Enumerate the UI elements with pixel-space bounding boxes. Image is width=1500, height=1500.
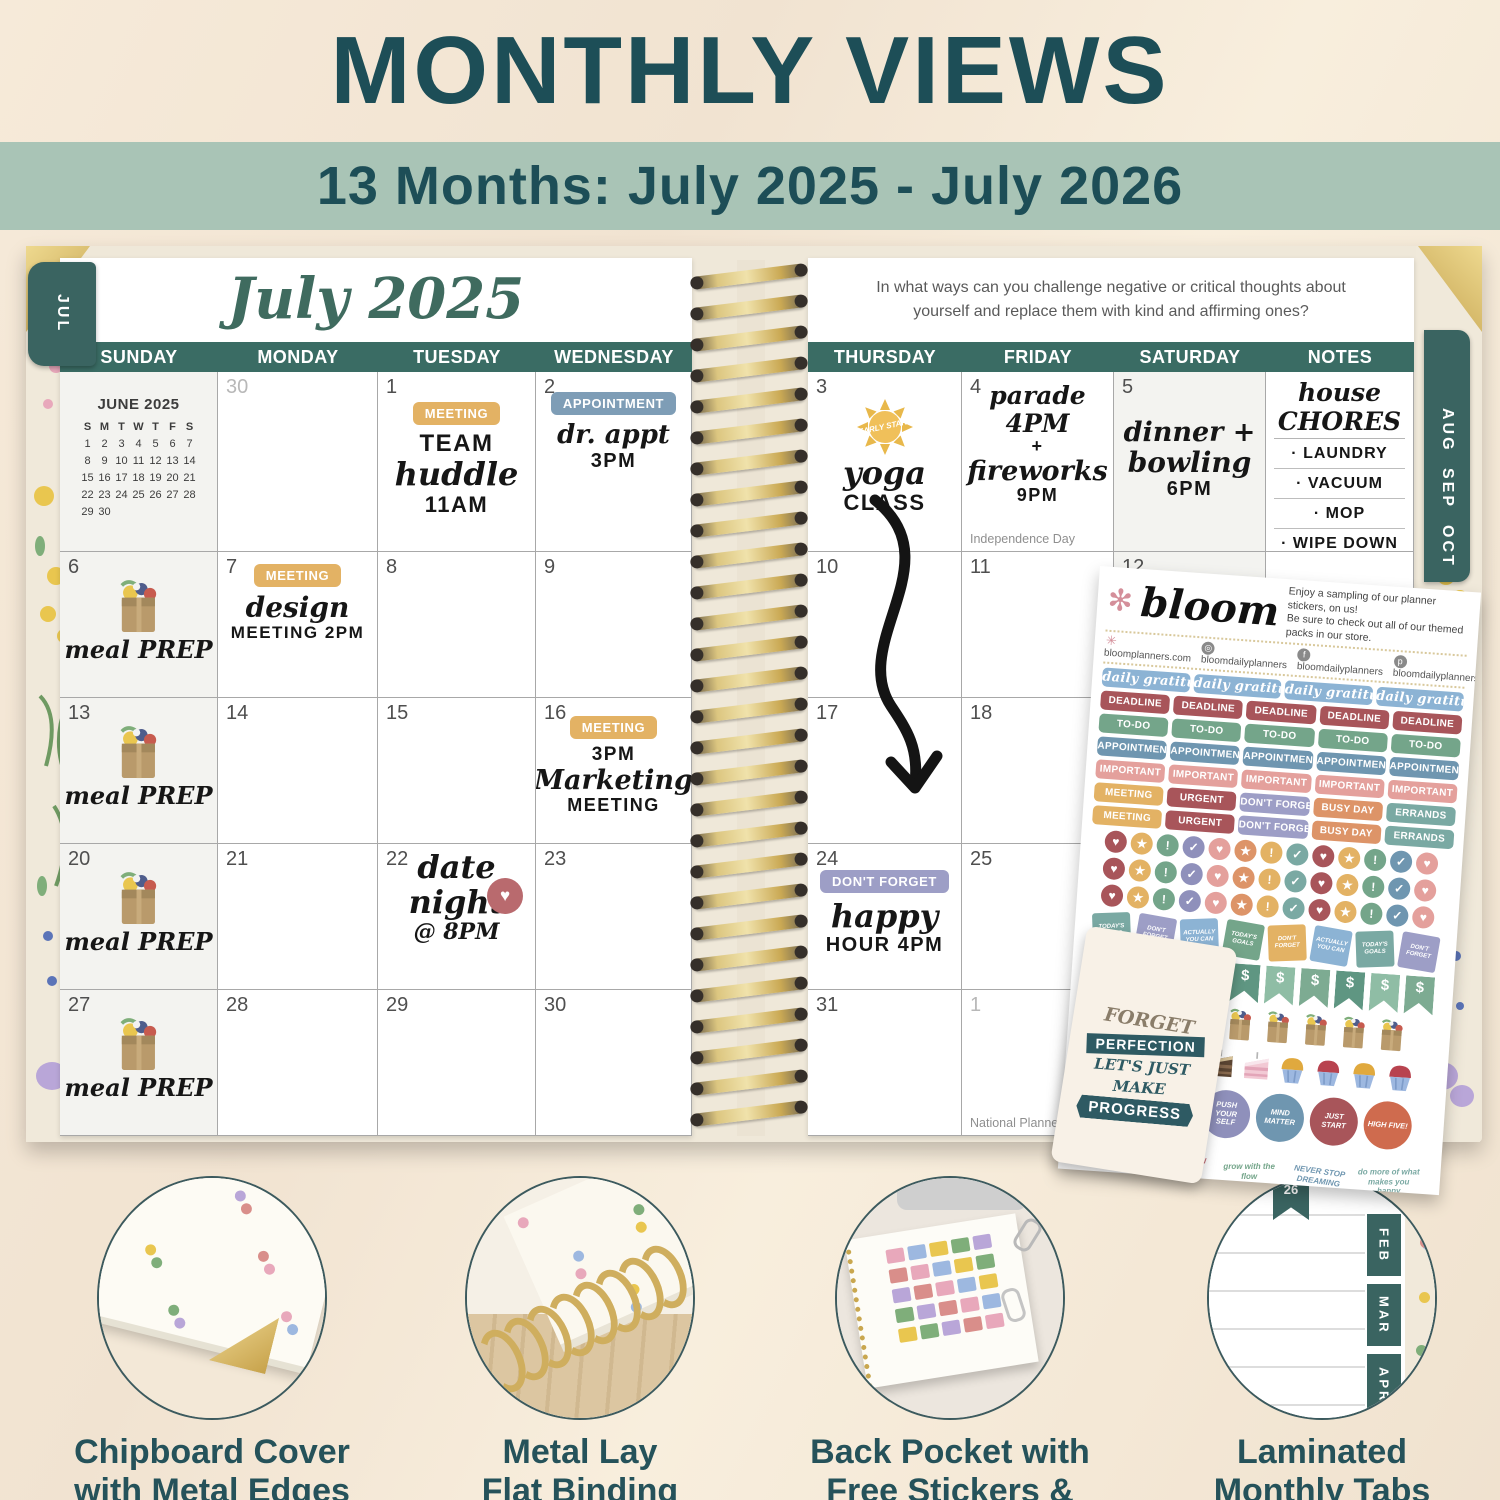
flower-dot	[689, 1253, 695, 1268]
label-sticker: IMPORTANT	[1314, 775, 1384, 799]
handwritten-entry: HOUR 4PM	[826, 934, 944, 956]
sticker-swatch	[932, 1260, 952, 1277]
calendar-cell: 13meal PREP	[60, 698, 218, 844]
month-title: July 2025	[60, 266, 692, 332]
heart-circle-sticker: ♥	[1412, 906, 1435, 929]
cell-content: meal PREP	[60, 870, 217, 955]
cell-content: meal PREP	[60, 1016, 217, 1101]
day-number: 2	[544, 376, 555, 399]
day-header: TUESDAY	[378, 342, 536, 372]
caption-line: Monthly Tabs	[1214, 1472, 1431, 1500]
mini-calendar-day: 18	[130, 470, 147, 487]
label-sticker: IMPORTANT	[1387, 780, 1457, 804]
mini-calendar-day: 10	[113, 453, 130, 470]
flower-dot	[173, 1316, 186, 1329]
sticky-note-sticker: DON'T FORGET	[1397, 931, 1441, 973]
handwritten-entry: @ 8PM	[414, 920, 500, 944]
calendar-cell: 28	[218, 990, 378, 1136]
journal-prompt-line: yourself and replace them with kind and …	[828, 300, 1394, 324]
day-number: 13	[68, 702, 90, 725]
calendar-cell: 5dinner +bowling6PM	[1114, 372, 1266, 552]
handwritten-entry: MEETING	[567, 796, 660, 816]
cupcake-icon	[1348, 1059, 1380, 1093]
day-number: 23	[544, 848, 566, 871]
sticker-swatch	[892, 1287, 912, 1304]
day-header: MONDAY	[218, 342, 378, 372]
calendar-cell: 14	[218, 698, 378, 844]
star-circle-sticker: ★	[1128, 859, 1151, 882]
heart-circle-sticker: ♥	[1204, 891, 1227, 914]
flower-dot	[634, 1220, 649, 1235]
flower-dot	[571, 1249, 586, 1264]
handwritten-entry: 6PM	[1167, 478, 1213, 500]
label-sticker: URGENT	[1165, 810, 1235, 834]
exclaim-circle-sticker: !	[1156, 834, 1179, 857]
day-number: 15	[386, 702, 408, 725]
caption-line: Free Stickers & Bookmark	[740, 1472, 1160, 1500]
mini-calendar-day: 16	[96, 470, 113, 487]
calendar-cell: 8	[378, 552, 536, 698]
dollar-flag-sticker: $	[1404, 975, 1436, 1015]
flower-dot	[240, 1202, 253, 1215]
sticker-swatch	[972, 1234, 992, 1251]
label-sticker: DEADLINE	[1392, 711, 1462, 735]
exclaim-circle-sticker: !	[1260, 841, 1283, 864]
label-sticker: ERRANDS	[1384, 826, 1454, 850]
event-sticker: MEETING	[254, 564, 341, 587]
label-sticker: MEETING	[1094, 782, 1164, 806]
ruled-page	[1209, 1178, 1365, 1418]
cell-content: MEETING3PMMarketingMEETING	[536, 712, 691, 815]
heart-circle-sticker: ♥	[1308, 898, 1331, 921]
mini-calendar-day: 26	[147, 487, 164, 504]
feature-caption: Laminated Monthly Tabs	[1214, 1433, 1431, 1500]
notes-item: · WIPE DOWN	[1274, 529, 1405, 552]
sun-sticker-label: EARLY START	[850, 393, 919, 462]
sticker-swatch	[888, 1267, 908, 1284]
grocery-bag-icon	[1299, 1012, 1333, 1049]
day-number: 1	[386, 376, 397, 399]
mini-calendar-day: 24	[113, 487, 130, 504]
label-sticker: TO-DO	[1244, 724, 1314, 748]
check-circle-sticker: ✓	[1284, 870, 1307, 893]
sticker-swatch	[941, 1319, 961, 1336]
calendar-cell: 23	[536, 844, 692, 990]
mini-calendar-day	[181, 504, 198, 521]
label-sticker: ERRANDS	[1386, 803, 1456, 827]
dow-label: T	[147, 419, 164, 436]
sticker-swatch	[920, 1323, 940, 1340]
cupcake-icon	[1384, 1061, 1416, 1095]
day-number: 17	[816, 702, 838, 725]
social-link: ✳bloomplanners.com	[1104, 634, 1193, 665]
notes-item: · VACUUM	[1274, 469, 1405, 499]
day-number: 7	[226, 556, 237, 579]
dow-label: W	[130, 419, 147, 436]
caption-line: with Metal Edges	[74, 1472, 350, 1500]
flower-dot	[1420, 1237, 1431, 1248]
grocery-bag-icon	[1261, 1010, 1295, 1047]
flower-dot	[144, 1243, 157, 1256]
handwritten-entry: +	[1031, 437, 1043, 457]
product-photo-tabs: 26FEBMARAPR	[1207, 1176, 1437, 1420]
feature-caption: Chipboard Cover with Metal Edges	[74, 1433, 350, 1500]
sticker-swatch	[907, 1244, 927, 1261]
handwritten-entry: meal PREP	[64, 929, 212, 955]
cell-content: APPOINTMENTdr. appt3PM	[536, 388, 691, 472]
day-number: 29	[386, 994, 408, 1017]
mini-calendar-day: 28	[181, 487, 198, 504]
event-sticker: APPOINTMENT	[551, 392, 676, 415]
notes-item: · MOP	[1274, 499, 1405, 529]
mini-calendar-day: 15	[79, 470, 96, 487]
label-sticker: DON'T FORGET	[1238, 815, 1308, 839]
mini-calendar-day	[130, 504, 147, 521]
heart-sticker: ♥	[487, 878, 523, 914]
desk-object	[897, 1176, 1027, 1210]
day-number: 27	[68, 994, 90, 1017]
mini-calendar-day: 4	[130, 436, 147, 453]
caption-line: Flat Binding	[482, 1472, 678, 1500]
social-link: pbloomdailyplanners	[1392, 655, 1480, 685]
mini-calendar-week-row: 22232425262728	[73, 487, 205, 504]
dollar-flag-sticker: $	[1334, 971, 1366, 1011]
flower-dot	[1416, 1345, 1427, 1356]
mini-calendar-day	[113, 504, 130, 521]
monthly-tab: MAR	[1367, 1284, 1401, 1346]
flower-dot	[632, 1202, 647, 1217]
monthly-tab-label: APR	[1377, 1367, 1392, 1403]
label-sticker: DEADLINE	[1100, 690, 1170, 714]
label-sticker: TO-DO	[1171, 719, 1241, 743]
flower-dot	[1419, 1292, 1430, 1303]
product-photo-cover	[97, 1176, 327, 1420]
calendar-cell: 21	[218, 844, 378, 990]
sticker-swatch	[916, 1303, 936, 1320]
sticky-note-sticker: TODAY'S GOALS	[1355, 931, 1394, 968]
calendar-cell: 1MEETINGTEAMhuddle11AM	[378, 372, 536, 552]
social-link: fbloomdailyplanners	[1297, 648, 1385, 678]
floral-cover-sliver	[1405, 1178, 1435, 1418]
star-circle-sticker: ★	[1336, 873, 1359, 896]
sticker-swatch	[954, 1257, 974, 1274]
heart-circle-sticker: ♥	[1413, 879, 1436, 902]
dow-label: S	[79, 419, 96, 436]
dow-label: T	[113, 419, 130, 436]
handwritten-entry: happy	[831, 899, 938, 934]
sticker-swatch	[985, 1313, 1005, 1330]
handwritten-entry: 9PM	[1017, 486, 1059, 506]
exclaim-circle-sticker: !	[1256, 895, 1279, 918]
flower-dot	[286, 1323, 299, 1336]
sticker-swatch	[935, 1280, 955, 1297]
early-start-sun-sticker: EARLY START	[856, 398, 914, 456]
flower-dot	[257, 1250, 270, 1263]
feature-caption: Back Pocket with Free Stickers & Bookmar…	[740, 1433, 1160, 1500]
day-number: 24	[816, 848, 838, 871]
month-tabs-aug-sep-oct: AUG SEP OCT	[1424, 330, 1470, 582]
mini-calendar-week-row: 15161718192021	[73, 470, 205, 487]
motivational-round-sticker: HIGH FIVE!	[1362, 1100, 1413, 1151]
flower-dot	[234, 1189, 247, 1202]
exclaim-circle-sticker: !	[1363, 848, 1386, 871]
sticker-swatch	[963, 1316, 983, 1333]
handwritten-entry: dr. appt	[557, 421, 670, 450]
header: MONTHLY VIEWS	[0, 0, 1500, 142]
cupcake-icon	[1276, 1054, 1308, 1088]
subtitle: 13 Months: July 2025 - July 2026	[317, 155, 1183, 217]
motivational-round-sticker: MIND MATTER	[1254, 1092, 1305, 1143]
handwritten-entry: 3PM	[591, 450, 637, 472]
page-title: MONTHLY VIEWS	[330, 16, 1169, 126]
day-number: 10	[816, 556, 838, 579]
label-sticker: TO-DO	[1390, 734, 1460, 758]
calendar-cell: 30	[536, 990, 692, 1136]
monthly-tab-label: FEB	[1377, 1228, 1392, 1263]
cake-slice-icon	[1240, 1049, 1272, 1085]
flower-dot	[1423, 1398, 1434, 1409]
heart-circle-sticker: ♥	[1415, 852, 1438, 875]
mini-calendar-day: 11	[130, 453, 147, 470]
mini-calendar-day: 9	[96, 453, 113, 470]
day-header: NOTES	[1266, 342, 1414, 372]
day-number: 9	[544, 556, 555, 579]
calendar-cell: 27meal PREP	[60, 990, 218, 1136]
bloom-flower-icon: ✻	[1106, 582, 1134, 619]
calendar-cell: 2APPOINTMENTdr. appt3PM	[536, 372, 692, 552]
calendar-cell: 20meal PREP	[60, 844, 218, 990]
mini-calendar-day: 3	[113, 436, 130, 453]
sticker-sheet-tagline: Enjoy a sampling of our planner stickers…	[1285, 585, 1470, 652]
dow-label: F	[164, 419, 181, 436]
heart-circle-sticker: ♥	[1310, 872, 1333, 895]
label-sticker: DEADLINE	[1246, 701, 1316, 725]
heart-circle-sticker: ♥	[1312, 845, 1335, 868]
mini-calendar-day: 7	[181, 436, 198, 453]
journal-prompt: In what ways can you challenge negative …	[828, 276, 1394, 324]
flower-dot	[687, 1236, 695, 1251]
dow-label: S	[181, 419, 198, 436]
check-circle-sticker: ✓	[1178, 889, 1201, 912]
cell-content: meal PREP	[60, 578, 217, 663]
monthly-tab-label: MAR	[1377, 1296, 1392, 1335]
sticker-swatch	[960, 1296, 980, 1313]
mini-calendar-day: 20	[164, 470, 181, 487]
check-circle-sticker: ✓	[1386, 904, 1409, 927]
cell-content: MEETINGdesignMEETING 2PM	[218, 560, 377, 642]
check-circle-sticker: ✓	[1180, 862, 1203, 885]
label-sticker: TO-DO	[1317, 729, 1387, 753]
word-art-sticker: grow with the flow	[1216, 1162, 1282, 1181]
star-circle-sticker: ★	[1230, 893, 1253, 916]
calendar-cell: 7MEETINGdesignMEETING 2PM	[218, 552, 378, 698]
notes-item: · LAUNDRY	[1274, 439, 1405, 469]
day-number: 30	[226, 376, 248, 399]
exclaim-circle-sticker: !	[1258, 868, 1281, 891]
star-circle-sticker: ★	[1234, 839, 1257, 862]
grocery-bag-icon	[112, 724, 166, 783]
caption-line: Chipboard Cover	[74, 1433, 350, 1472]
caption-line: Back Pocket with	[740, 1433, 1160, 1472]
mini-calendar-day	[164, 504, 181, 521]
cell-content: dinner +bowling6PM	[1114, 418, 1265, 500]
day-number: 14	[226, 702, 248, 725]
handwritten-entry: meal PREP	[64, 783, 212, 809]
feature-chipboard-cover: Chipboard Cover with Metal Edges	[2, 1176, 422, 1500]
label-sticker: IMPORTANT	[1168, 764, 1238, 788]
flower-dot	[121, 1183, 134, 1196]
label-sticker: DON'T FORGET	[1240, 792, 1310, 816]
day-number: 16	[544, 702, 566, 725]
caption-line: Laminated	[1214, 1433, 1431, 1472]
day-number: 5	[1122, 376, 1133, 399]
flower-dot	[280, 1310, 293, 1323]
day-number: 28	[226, 994, 248, 1017]
calendar-cell: 31	[808, 990, 962, 1136]
month-tab-label: OCT	[1438, 525, 1456, 568]
handwritten-entry: meal PREP	[64, 637, 212, 663]
sticker-swatch	[929, 1240, 949, 1257]
flower-dot	[127, 1196, 140, 1209]
feature-binding: Metal Lay Flat Binding	[370, 1176, 790, 1500]
star-circle-sticker: ★	[1337, 846, 1360, 869]
mini-calendar-week-row: 1234567	[73, 436, 205, 453]
day-header: FRIDAY	[962, 342, 1114, 372]
sticker-swatch	[979, 1273, 999, 1290]
mini-calendar-day: 6	[164, 436, 181, 453]
flower-dot	[516, 1216, 531, 1231]
day-number: 30	[544, 994, 566, 1017]
mini-calendar-day: 1	[79, 436, 96, 453]
social-link-text: bloomdailyplanners	[1201, 654, 1288, 671]
bookmark-text: PROGRESS	[1076, 1094, 1195, 1127]
mini-calendar-day: 27	[164, 487, 181, 504]
journal-prompt-line: In what ways can you challenge negative …	[828, 276, 1394, 300]
calendar-cell: 6meal PREP	[60, 552, 218, 698]
sticky-note-sticker: DON'T FORGET	[1268, 924, 1307, 961]
grocery-bag-icon	[112, 578, 166, 637]
grocery-bag-icon	[112, 870, 166, 929]
flower-dot	[263, 1263, 276, 1276]
exclaim-circle-sticker: !	[1152, 888, 1175, 911]
flower-icon: ✳	[1104, 634, 1118, 648]
pinterest-icon: p	[1393, 655, 1407, 669]
heart-circle-sticker: ♥	[1100, 884, 1123, 907]
day-number: 8	[386, 556, 397, 579]
mini-calendar-week-row: 2930	[73, 504, 205, 521]
label-sticker: BUSY DAY	[1313, 798, 1383, 822]
handwritten-entry: yoga	[843, 456, 926, 491]
star-circle-sticker: ★	[1334, 900, 1357, 923]
grocery-bag-icon	[1337, 1015, 1371, 1052]
day-number: 4	[970, 376, 981, 399]
sticker-swatch	[951, 1237, 971, 1254]
month-tab-label: SEP	[1438, 468, 1456, 509]
handwritten-entry: huddle	[395, 457, 519, 492]
label-sticker: daily gratitude	[1102, 668, 1191, 693]
month-tab-label: AUG	[1438, 408, 1456, 453]
exclaim-circle-sticker: !	[1362, 875, 1385, 898]
label-sticker: APPOINTMENT	[1389, 757, 1459, 781]
check-circle-sticker: ✓	[1282, 897, 1305, 920]
label-sticker: MEETING	[1092, 805, 1162, 829]
handwritten-entry: 11AM	[425, 493, 488, 517]
sticker-swatch	[913, 1283, 933, 1300]
grocery-bag-icon	[1223, 1007, 1257, 1044]
notes-heading: house CHORES	[1274, 378, 1405, 439]
day-header: WEDNESDAY	[536, 342, 692, 372]
event-sticker: DON'T FORGET	[820, 870, 949, 893]
label-sticker: APPOINTMENT	[1243, 747, 1313, 771]
mini-calendar-day: 12	[147, 453, 164, 470]
product-marketing-image: MONTHLY VIEWS 13 Months: July 2025 - Jul…	[0, 0, 1500, 1500]
label-sticker: daily gratitude	[1193, 674, 1282, 699]
dow-label: M	[96, 419, 113, 436]
calendar-cell: 9	[536, 552, 692, 698]
calendar-cell: house CHORES· LAUNDRY· VACUUM· MOP· WIPE…	[1266, 372, 1414, 552]
mini-calendar-dow-row: SMTWTFS	[73, 419, 205, 436]
label-sticker: IMPORTANT	[1095, 759, 1165, 783]
mini-calendar-week-row: 891011121314	[73, 453, 205, 470]
exclaim-circle-sticker: !	[1360, 902, 1383, 925]
sticker-swatch	[910, 1264, 930, 1281]
day-number: 6	[68, 556, 79, 579]
grocery-bag-icon	[112, 1016, 166, 1075]
label-sticker: APPOINTMENT	[1316, 752, 1386, 776]
motivational-round-sticker: JUST START	[1308, 1096, 1359, 1147]
label-sticker: DEADLINE	[1173, 696, 1243, 720]
mini-calendar-day	[147, 504, 164, 521]
cupcake-icon	[1312, 1056, 1344, 1090]
flower-dot	[574, 1266, 589, 1281]
cell-content: parade 4PM+fireworks9PM	[962, 382, 1113, 506]
monthly-tab: FEB	[1367, 1214, 1401, 1276]
exclaim-circle-sticker: !	[1154, 861, 1177, 884]
sticker-swatch	[975, 1253, 995, 1270]
flower-dot	[167, 1304, 180, 1317]
day-number: 22	[386, 848, 408, 871]
heart-circle-sticker: ♥	[1208, 837, 1231, 860]
social-link-text: bloomplanners.com	[1104, 648, 1192, 665]
star-circle-sticker: ★	[1130, 832, 1153, 855]
mini-calendar-day: 2	[96, 436, 113, 453]
bookmark-text: PERFECTION	[1086, 1033, 1205, 1057]
cell-content: meal PREP	[60, 724, 217, 809]
handwritten-entry: MEETING 2PM	[231, 624, 365, 643]
event-sticker: MEETING	[413, 402, 500, 425]
heart-circle-sticker: ♥	[1102, 857, 1125, 880]
handwritten-entry: Marketing	[536, 766, 692, 796]
monthly-tabs-column: FEBMARAPR	[1367, 1178, 1401, 1418]
day-number: 1	[970, 994, 981, 1017]
mini-calendar-day: 30	[96, 504, 113, 521]
day-header: THURSDAY	[808, 342, 962, 372]
brand-logo: bloom	[1139, 579, 1281, 636]
label-sticker: DEADLINE	[1319, 706, 1389, 730]
handwritten-entry: 3PM	[592, 745, 636, 766]
flower-dot	[150, 1256, 163, 1269]
monthly-tab: APR	[1367, 1354, 1401, 1416]
handwritten-entry: date	[417, 850, 495, 885]
handwritten-entry: fireworks	[967, 457, 1107, 487]
month-tab-jul: JUL	[28, 262, 96, 366]
day-number: 3	[816, 376, 827, 399]
handwritten-entry: design	[246, 593, 350, 624]
mini-calendar-day: 17	[113, 470, 130, 487]
caption-line: Metal Lay	[482, 1433, 678, 1472]
calendar-cell: JUNE 2025SMTWTFS123456789101112131415161…	[60, 372, 218, 552]
grocery-bag-icon	[1375, 1017, 1409, 1054]
